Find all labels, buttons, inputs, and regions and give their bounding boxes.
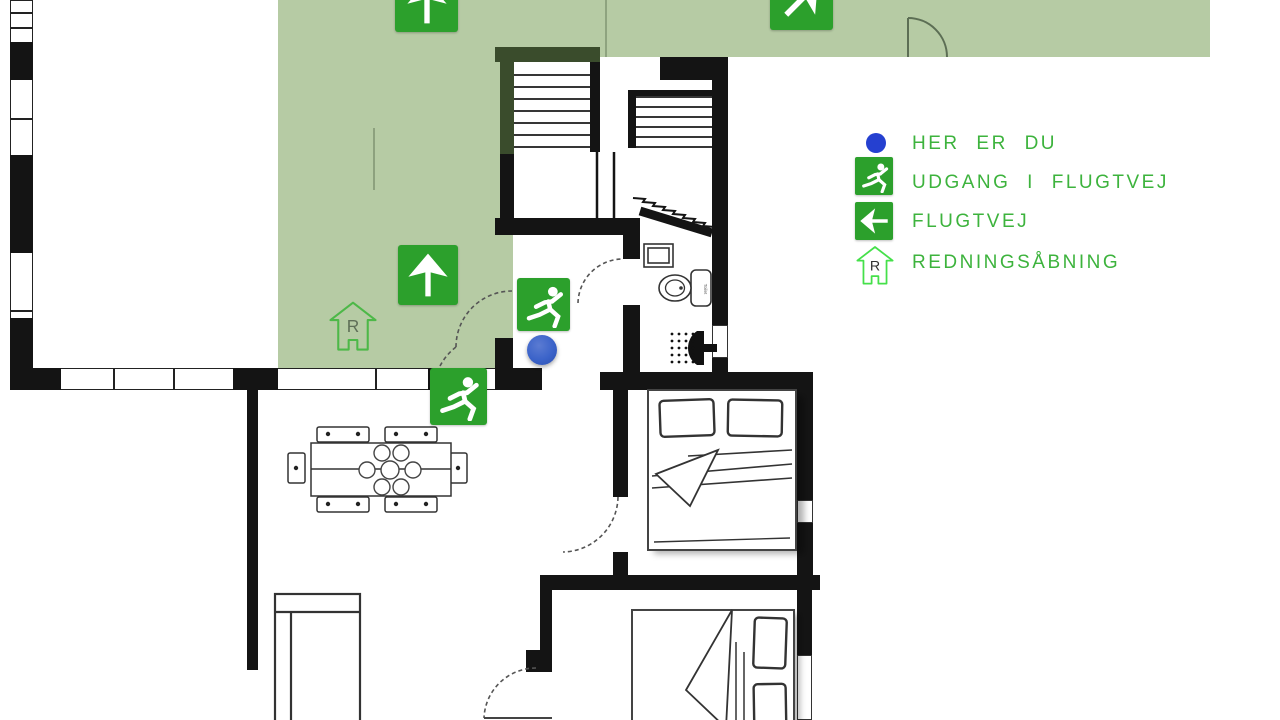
stairwell-top-wall — [495, 47, 600, 62]
bedroom1-top-wall — [600, 372, 813, 390]
exit-running-man-icon — [855, 157, 893, 195]
bedroom1-right-wall — [797, 523, 813, 575]
pillow — [728, 400, 783, 437]
running-man-icon — [434, 372, 483, 421]
bedroom1-left-wall — [613, 552, 628, 575]
overlay-seam-line — [605, 0, 607, 57]
running-man-icon — [858, 160, 891, 193]
window-divider — [10, 27, 33, 29]
window — [797, 500, 813, 523]
dining-room-wall — [247, 390, 258, 670]
plan-linework: Toilet — [0, 0, 1280, 720]
legend-label-here: HER ER DU — [912, 133, 1057, 155]
bedroom1-right-wall — [797, 372, 813, 500]
rescue-letter: R — [870, 259, 880, 275]
exit-sign-up-arrow-top — [395, 0, 458, 32]
window — [712, 325, 728, 358]
pillow — [659, 399, 714, 437]
window-divider — [10, 12, 33, 14]
stairwell-flight-top-edge — [628, 90, 712, 96]
chair-dots — [294, 432, 460, 506]
bedroom2-right-wall — [797, 590, 812, 655]
sink — [644, 244, 673, 267]
stair-flight-left — [514, 75, 590, 147]
stairwell-bottom-wall — [495, 218, 640, 235]
escape-route-arrow-sign — [398, 245, 458, 305]
up-arrow-icon — [402, 0, 452, 27]
running-man-icon — [521, 282, 567, 328]
shower-spray — [671, 333, 695, 364]
rescue-opening-icon: R — [328, 301, 378, 353]
window — [797, 655, 812, 720]
exterior-wall-right — [712, 57, 728, 325]
bedroom2-left-wall — [540, 590, 552, 652]
stairwell-middle-wall — [590, 62, 600, 152]
stairwell-flight-wall — [628, 96, 636, 148]
stair-flight-right — [636, 97, 712, 147]
door-arc — [578, 259, 622, 303]
chair — [385, 497, 437, 512]
shower-icon — [671, 331, 717, 365]
wall-segment — [10, 42, 33, 80]
rescue-opening-icon: R — [856, 245, 894, 287]
escape-route-overlay-corridor — [278, 0, 513, 370]
wall-segment — [10, 155, 33, 253]
window-divider — [113, 368, 115, 390]
bathroom-wall — [623, 305, 640, 372]
up-right-arrow-icon — [765, 0, 839, 35]
here-dot-icon — [866, 133, 886, 153]
rescue-letter: R — [347, 316, 360, 336]
wall-segment — [10, 318, 33, 390]
blanket-fold — [656, 450, 718, 506]
legend-label-exit: UDGANG I FLUGTVEJ — [912, 172, 1169, 194]
rescue-opening-icon: R — [856, 245, 894, 287]
legend-label-rescue: REDNINGSÅBNING — [912, 252, 1120, 274]
bathroom-wall — [623, 230, 640, 259]
left-arrow-icon — [858, 205, 890, 237]
bed-double-1 — [648, 390, 804, 554]
rescue-opening-marker: R — [328, 301, 378, 353]
chair — [317, 427, 369, 442]
wall-segment — [33, 368, 61, 390]
dining-set — [288, 427, 467, 512]
toilet: Toilet — [659, 270, 711, 306]
hall-corner-wall — [495, 338, 513, 368]
chair — [450, 453, 467, 483]
up-arrow-icon — [403, 250, 453, 300]
exit-sign-diagonal-arrow — [770, 0, 833, 30]
door-arc — [484, 668, 536, 718]
stair-cut-line — [633, 198, 715, 227]
bed-double-2 — [632, 610, 800, 720]
hall-corner-wall — [495, 368, 542, 390]
window-divider — [10, 118, 33, 120]
wall-segment — [233, 368, 278, 390]
evacuation-plan: Toilet — [0, 0, 1280, 720]
exit-sign-running-man-hall — [517, 278, 570, 331]
cabinet — [275, 594, 360, 720]
window-divider — [173, 368, 175, 390]
stairwell-exit-jamb — [660, 57, 712, 80]
bedroom2-door-jamb — [526, 650, 552, 672]
bedroom1-left-wall — [613, 390, 628, 497]
bedrooms-divider-wall — [540, 575, 820, 590]
exit-sign-running-man-dining — [430, 368, 487, 425]
chair — [317, 497, 369, 512]
chair — [288, 453, 305, 483]
blanket-fold — [686, 610, 732, 720]
toilet-label: Toilet — [703, 284, 708, 295]
dining-table — [311, 443, 451, 496]
window-divider — [10, 310, 33, 312]
escape-route-arrow-icon — [855, 202, 893, 240]
pillow — [753, 617, 787, 668]
table-decor — [359, 445, 421, 495]
door-arc — [563, 497, 618, 552]
legend-label-route: FLUGTVEJ — [912, 211, 1029, 233]
you-are-here-dot — [527, 335, 557, 365]
overlay-faint-line — [373, 128, 375, 190]
pillow — [754, 684, 787, 720]
chair — [385, 427, 437, 442]
stair-cut-band — [640, 211, 712, 233]
window-divider — [375, 368, 377, 390]
stairwell-left-wall-upper — [500, 62, 514, 154]
